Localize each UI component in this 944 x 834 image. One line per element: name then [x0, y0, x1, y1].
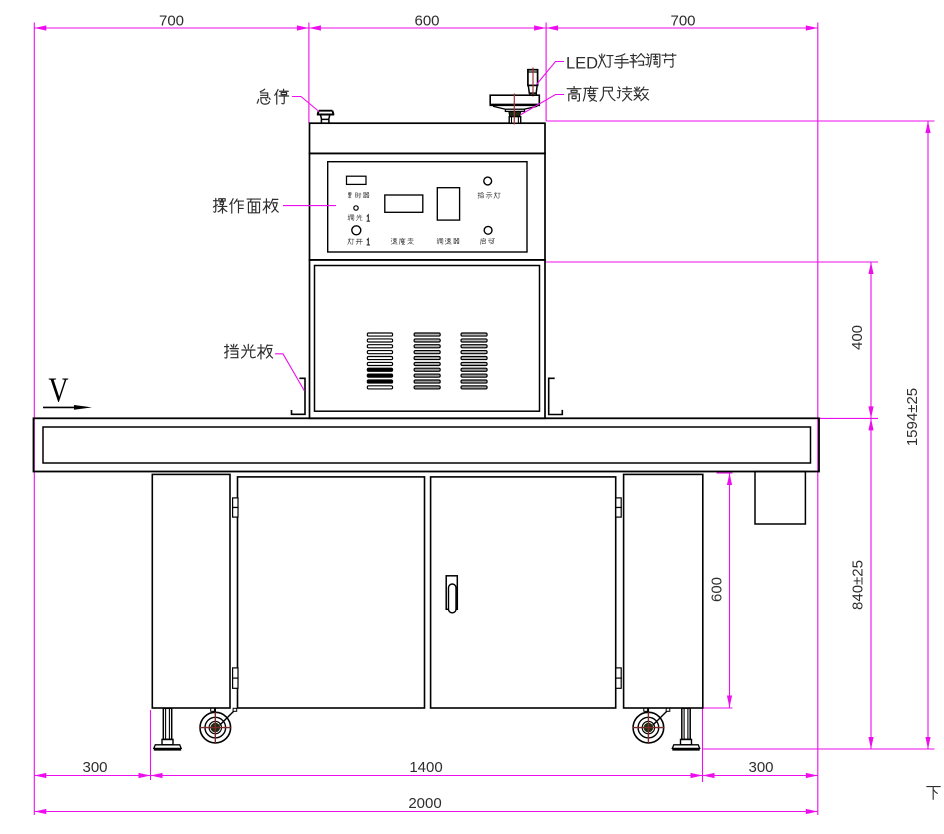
svg-text:700: 700 [670, 13, 695, 30]
svg-text:300: 300 [748, 759, 773, 776]
svg-text:1594±25: 1594±25 [904, 388, 921, 446]
svg-text:1400: 1400 [409, 759, 442, 776]
svg-text:2000: 2000 [408, 795, 441, 812]
svg-text:600: 600 [414, 13, 439, 30]
svg-text:700: 700 [159, 13, 184, 30]
svg-text:840±25: 840±25 [850, 560, 867, 610]
svg-text:600: 600 [709, 577, 726, 602]
svg-text:300: 300 [82, 759, 107, 776]
svg-text:LED: LED [566, 54, 598, 72]
svg-text:V: V [48, 371, 68, 410]
svg-text:400: 400 [849, 325, 866, 350]
